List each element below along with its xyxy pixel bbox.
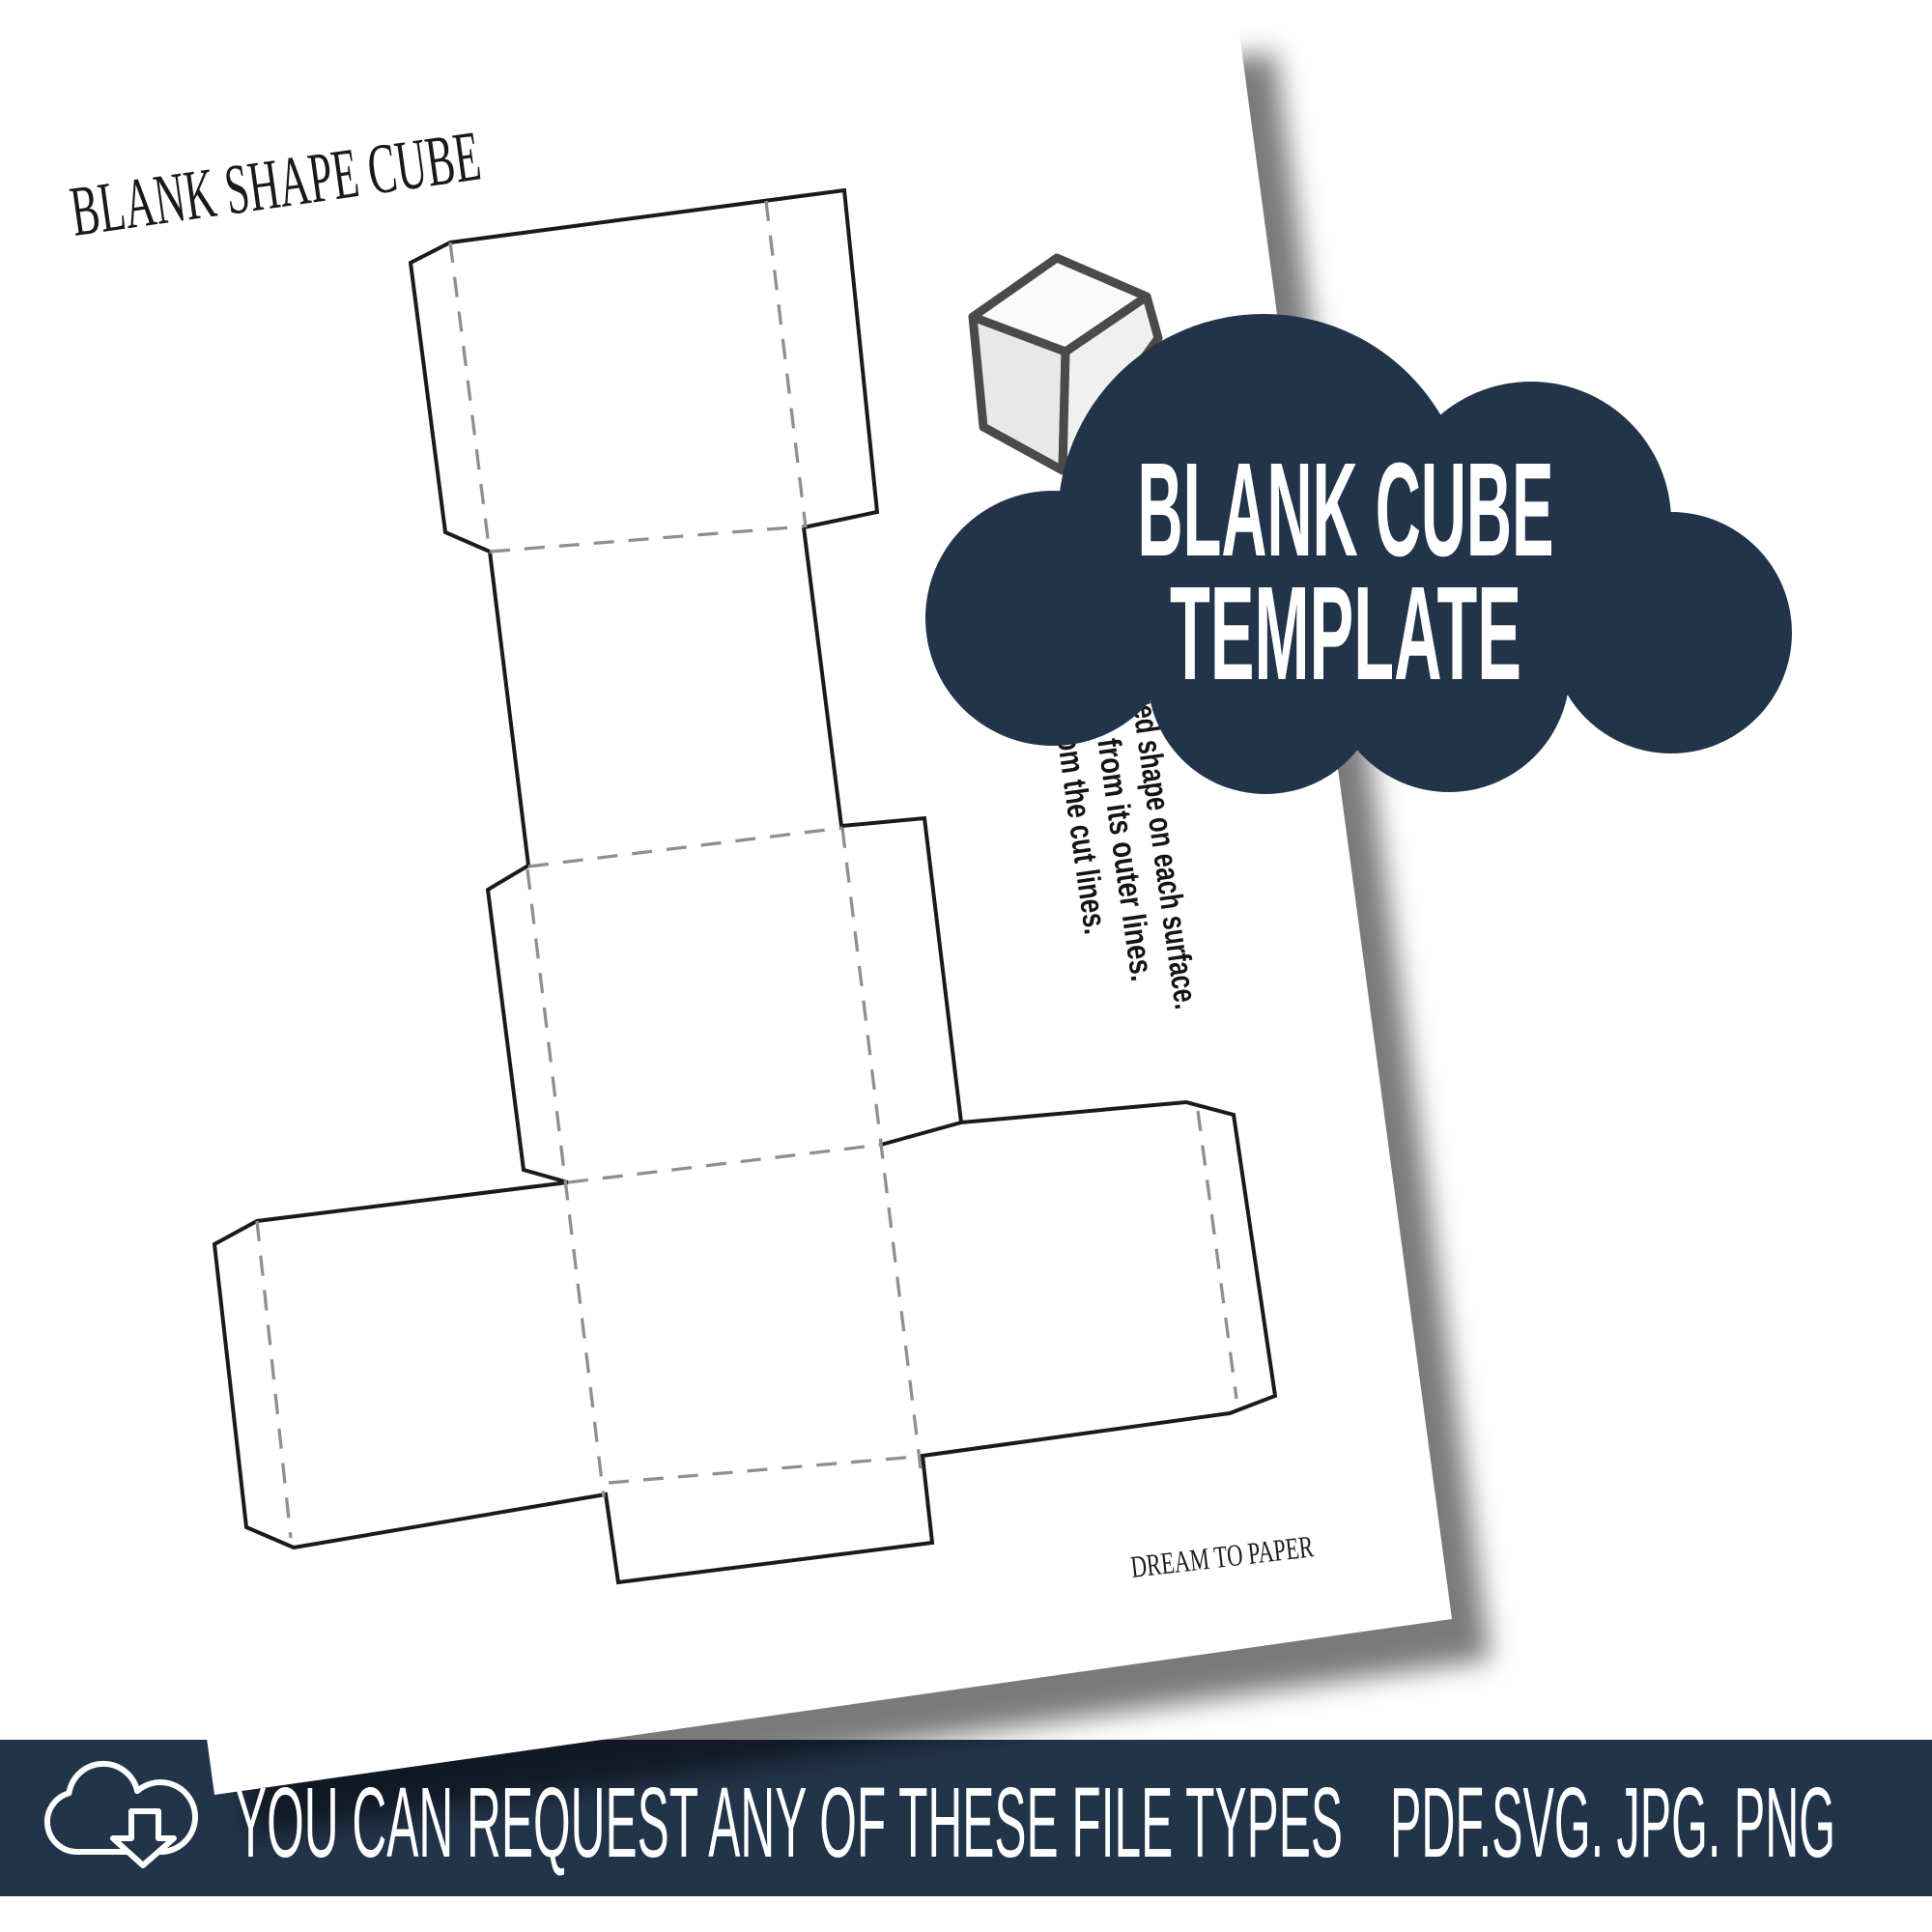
svg-text:YOU CAN REQUEST ANY OF THESE F: YOU CAN REQUEST ANY OF THESE FILE TYPES [235, 1767, 1343, 1878]
svg-text:PDF.SVG. JPG. PNG: PDF.SVG. JPG. PNG [1390, 1767, 1835, 1878]
svg-text:TEMPLATE: TEMPLATE [1170, 559, 1521, 708]
svg-text:DREAM TO PAPER: DREAM TO PAPER [1129, 1528, 1316, 1584]
svg-text:BLANK SHAPE CUBE: BLANK SHAPE CUBE [66, 117, 485, 252]
